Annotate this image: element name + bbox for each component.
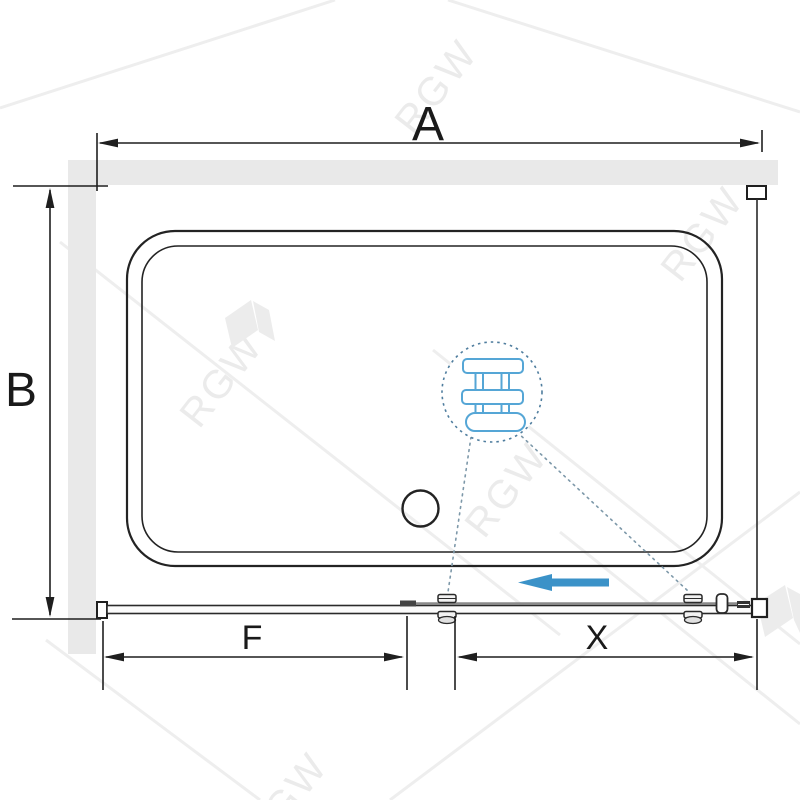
wall-profile-right-cap — [752, 599, 767, 617]
dimension-f: F — [103, 616, 407, 690]
mechanism-top-rail — [463, 359, 523, 373]
watermark-diagonal-line — [0, 0, 335, 108]
dimension-b-label: B — [5, 364, 37, 417]
watermark-layer: RGW RGW RGW RGW RGW — [0, 0, 800, 800]
arrowhead-up — [46, 188, 55, 208]
diagram-canvas: RGW RGW RGW RGW RGW A B — [0, 0, 800, 800]
door-roller-block — [717, 594, 728, 613]
bottom-rail — [107, 606, 752, 614]
dimension-a-label: A — [412, 98, 444, 151]
arrowhead-right — [384, 653, 404, 662]
roller-mechanism-drawing — [462, 359, 525, 431]
arrowhead-left — [98, 139, 118, 148]
watermark-brand-text: RGW — [237, 744, 337, 800]
arrowhead-left — [457, 653, 477, 662]
mechanism-post — [476, 372, 484, 391]
arrowhead-right — [734, 653, 754, 662]
watermark-brand-text: RGW — [457, 434, 557, 545]
mechanism-roller — [466, 413, 525, 431]
dimension-x-label: X — [586, 619, 609, 657]
door-leading-edge-piece — [400, 601, 416, 607]
arrowhead-right — [740, 139, 760, 148]
back-wall — [68, 160, 778, 185]
watermark-diagonal-line — [46, 640, 260, 800]
side-wall-left — [68, 160, 96, 654]
technical-drawing-shower-enclosure: RGW RGW RGW RGW RGW A B — [0, 0, 800, 800]
clamp-roller-wheel — [439, 617, 456, 624]
watermark-brand-text: RGW — [653, 178, 753, 289]
mechanism-carriage — [462, 390, 523, 404]
dimension-f-label: F — [242, 619, 263, 657]
watermark-paper-sheet-icon — [253, 301, 275, 341]
watermark-diagonal-line — [448, 0, 800, 112]
arrowhead-left — [104, 653, 124, 662]
arrowhead-down — [46, 597, 55, 617]
mechanism-post — [502, 372, 510, 391]
drain-circle — [403, 491, 439, 527]
slide-direction-arrow — [518, 574, 609, 591]
clamp-roller-wheel — [685, 617, 702, 624]
wall-profile-left-cap — [97, 602, 107, 618]
wall-mount-bracket — [747, 186, 766, 199]
detail-callout — [442, 342, 688, 592]
right-glass-panel — [747, 186, 766, 600]
